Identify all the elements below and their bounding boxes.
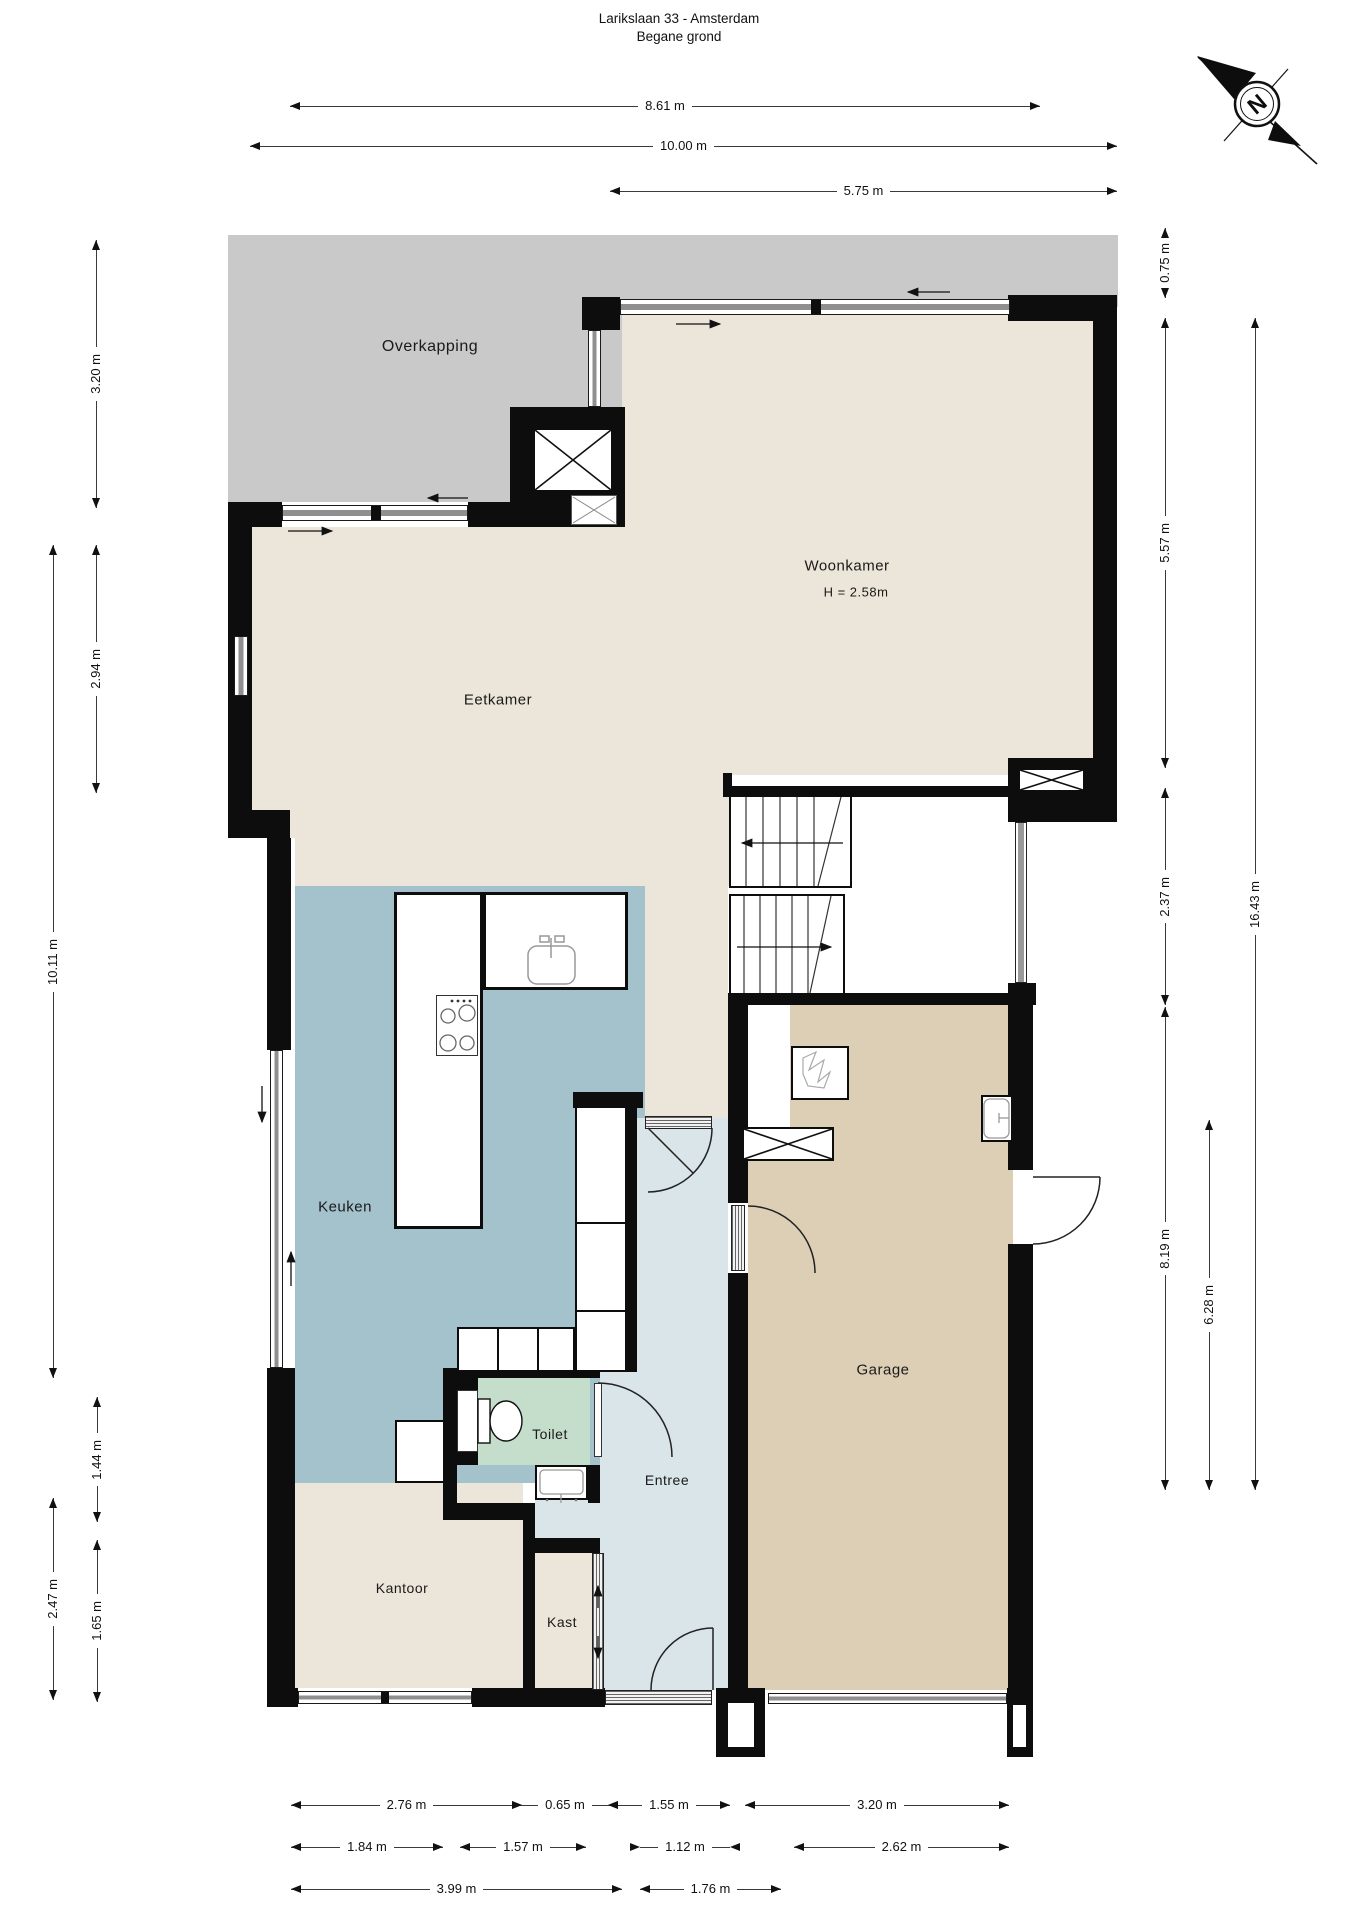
floor-plan: Larikslaan 33 - Amsterdam Begane grond [0, 0, 1358, 1920]
wall-cabinet-right [627, 1108, 637, 1372]
window-garage-bottom [768, 1693, 1007, 1704]
kitchen-cabinet-column [575, 1106, 627, 1372]
wall-left-lower [267, 1368, 295, 1707]
wall-top-window-left-block [582, 297, 620, 330]
dim-right-0-75: 0.75 m [1157, 228, 1173, 298]
wall-sink-right [588, 1465, 600, 1503]
wall-right-upper [1093, 295, 1117, 797]
kitchen-appliance-box [395, 1420, 445, 1483]
wall-toilet-niche-bottom [457, 1452, 478, 1465]
floor-entree-notch [535, 1500, 600, 1540]
wall-toilet-niche-top [457, 1378, 478, 1390]
floor-eetkamer [252, 527, 730, 838]
room-label-garage: Garage [856, 1362, 909, 1379]
dim-right-2-37: 2.37 m [1157, 788, 1173, 1005]
wall-glass-top-block [1008, 797, 1036, 822]
pillar-porch-notch [728, 1703, 754, 1747]
dim-left-1-65: 1.65 m [89, 1540, 105, 1702]
window-overkapping-side [588, 330, 601, 407]
dim-bottom-1-84: 1.84 m [291, 1840, 443, 1854]
door-leaf-garage-hall [731, 1205, 745, 1271]
dim-left-2-94: 2.94 m [88, 545, 104, 793]
wall-kast-left [523, 1520, 535, 1690]
dim-bottom-1-55: 1.55 m [608, 1798, 730, 1812]
dim-left-3-20: 3.20 m [88, 240, 104, 508]
shaft-chimney [533, 428, 613, 492]
toilet-niche [457, 1390, 478, 1452]
wall-garage-right-a [1008, 1005, 1033, 1170]
sliding-door-entree-top [645, 1116, 712, 1129]
wall-overkapping-window-end [468, 502, 510, 527]
kitchen-cabinet-row [457, 1327, 575, 1372]
dim-top-8-61: 8.61 m [290, 99, 1040, 113]
dim-bottom-2-76: 2.76 m [291, 1798, 522, 1812]
dim-bottom-3-99: 3.99 m [291, 1882, 622, 1896]
wall-hall-garage-a [728, 1005, 748, 1203]
wall-bottom-kantoor-b [472, 1688, 605, 1707]
boiler-unit [791, 1046, 849, 1100]
room-label-keuken: Keuken [318, 1199, 372, 1216]
pillar-right-notch [1013, 1705, 1026, 1747]
dim-left-1-44: 1.44 m [89, 1397, 105, 1522]
dim-bottom-1-76: 1.76 m [640, 1882, 781, 1896]
glass-wall-stairs [1015, 822, 1027, 983]
window-kantoor-bottom [298, 1691, 472, 1704]
wall-garage-right-b [1008, 1244, 1033, 1690]
room-label-overkapping: Overkapping [382, 338, 478, 356]
dim-right-16-43: 16.43 m [1247, 318, 1263, 1490]
dim-right-6-28: 6.28 m [1201, 1120, 1217, 1490]
dim-left-2-47: 2.47 m [45, 1498, 61, 1700]
dim-bottom-0-65: 0.65 m [522, 1798, 608, 1812]
room-label-eetkamer: Eetkamer [464, 692, 532, 709]
garage-sink [981, 1095, 1013, 1142]
dim-bottom-1-57: 1.57 m [460, 1840, 586, 1854]
room-label-kantoor: Kantoor [376, 1580, 429, 1596]
floor-understair [748, 1005, 790, 1129]
wall-kast-top [535, 1538, 600, 1553]
wall-bottom-kantoor-a [267, 1688, 298, 1707]
dim-bottom-2-62: 2.62 m [794, 1840, 1009, 1854]
toilet-hand-basin [535, 1465, 588, 1500]
stairs-upper-flight [729, 795, 852, 888]
kitchen-counter [483, 892, 628, 990]
garage-side-door-arc [1033, 1177, 1100, 1244]
floor-toilet [478, 1378, 590, 1465]
page-title: Larikslaan 33 - Amsterdam Begane grond [0, 10, 1358, 46]
room-label-woonkamer-height: H = 2.58m [824, 585, 889, 600]
door-leaf-toilet [594, 1383, 602, 1457]
shaft-chimney-small [571, 495, 617, 525]
grille-garage-wall [742, 1127, 834, 1161]
wall-glass-bottom-block [1008, 983, 1036, 1005]
floor-eetkamer-low [295, 838, 730, 886]
title-address: Larikslaan 33 - Amsterdam [0, 10, 1358, 28]
window-woonkamer-top [620, 299, 1010, 315]
stairs-lower-flight [729, 894, 845, 995]
wall-hall-garage-b [728, 1273, 748, 1690]
wall-kantoor-top [443, 1503, 535, 1520]
dim-right-5-57: 5.57 m [1157, 318, 1173, 768]
room-label-kast: Kast [547, 1614, 577, 1630]
dim-left-10-11: 10.11 m [45, 545, 61, 1378]
dim-bottom-3-20: 3.20 m [745, 1798, 1009, 1812]
title-floor: Begane grond [0, 28, 1358, 46]
cooktop [436, 995, 478, 1056]
wall-stair-top-stub [723, 773, 732, 786]
wall-toilet-left [443, 1368, 457, 1520]
sidelight-front-door [605, 1690, 712, 1705]
dim-top-10-00: 10.00 m [250, 139, 1117, 153]
compass-icon: N [1197, 56, 1317, 164]
dim-top-5-75: 5.75 m [610, 184, 1117, 198]
window-overkapping [282, 505, 468, 521]
sliding-door-kast [592, 1553, 604, 1690]
compass-north-letter: N [1242, 89, 1271, 120]
shaft-stair-corner [1018, 768, 1085, 792]
kitchen-island [394, 892, 483, 1229]
room-label-woonkamer: Woonkamer [804, 558, 889, 575]
dim-bottom-1-12: 1.12 m [640, 1840, 730, 1854]
wall-left-step [228, 810, 290, 838]
floor-hall [645, 886, 728, 1118]
dim-right-8-19: 8.19 m [1157, 1007, 1173, 1490]
room-label-entree: Entree [645, 1472, 689, 1488]
window-eetkamer-left [234, 636, 248, 696]
wall-overkapping-corner [252, 502, 282, 527]
wall-top-right-block [1008, 295, 1093, 321]
room-label-toilet: Toilet [532, 1426, 568, 1442]
wall-left-mid [267, 838, 291, 1050]
window-keuken-left [270, 1050, 283, 1368]
